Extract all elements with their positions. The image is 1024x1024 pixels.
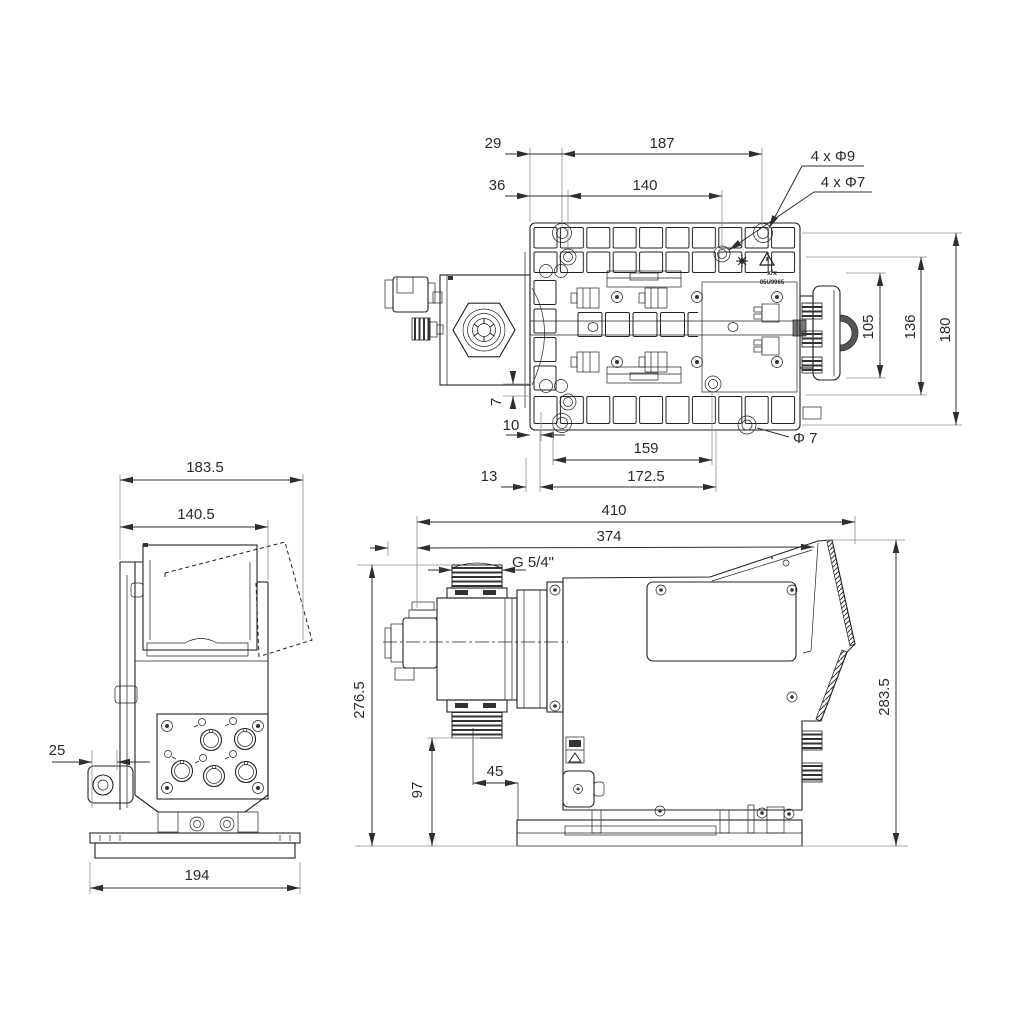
dim-410: 410 — [601, 502, 626, 519]
bottom-thread — [452, 712, 502, 738]
dim-276-5: 276.5 — [351, 681, 368, 719]
rear-plug-top — [802, 731, 822, 750]
plate-marking-line1: x/x — [767, 270, 777, 277]
plate-marking-line2: 05U9965 — [760, 280, 785, 286]
dim-140-5: 140.5 — [177, 506, 215, 523]
dim-105: 105 — [860, 314, 877, 339]
top-thread-g54 — [452, 565, 502, 588]
dim-159: 159 — [633, 440, 658, 457]
dim-13: 13 — [481, 468, 498, 485]
plate-grid-left — [533, 279, 559, 393]
pump-dimensional-drawing: x/x 05U9965 — [0, 0, 1024, 1024]
callout-4xdia9: 4 x Φ9 — [811, 148, 856, 165]
rear-plug-bottom — [802, 763, 822, 782]
dim-283-5: 283.5 — [876, 678, 893, 716]
dim-180: 180 — [937, 317, 954, 342]
dim-97: 97 — [409, 782, 426, 799]
dim-140: 140 — [632, 177, 657, 194]
dim-172-5: 172.5 — [627, 468, 665, 485]
dim-187: 187 — [649, 135, 674, 152]
dim-10: 10 — [503, 417, 520, 434]
dim-29: 29 — [485, 135, 502, 152]
dim-36: 36 — [489, 177, 506, 194]
dim-194: 194 — [184, 867, 209, 884]
dim-45: 45 — [487, 763, 504, 780]
dim-136: 136 — [902, 314, 919, 339]
dim-25: 25 — [49, 742, 66, 759]
dim-183-5: 183.5 — [186, 459, 224, 476]
plate-grid-bottom — [533, 395, 797, 428]
technical-drawing-page: x/x 05U9965 — [0, 0, 1024, 1024]
dim-374: 374 — [596, 528, 621, 545]
dim-dia7: Φ 7 — [793, 430, 817, 447]
callout-4xdia7: 4 x Φ7 — [821, 174, 866, 191]
dim-7: 7 — [488, 398, 505, 406]
dim-thread-g54: G 5/4" — [512, 554, 554, 571]
